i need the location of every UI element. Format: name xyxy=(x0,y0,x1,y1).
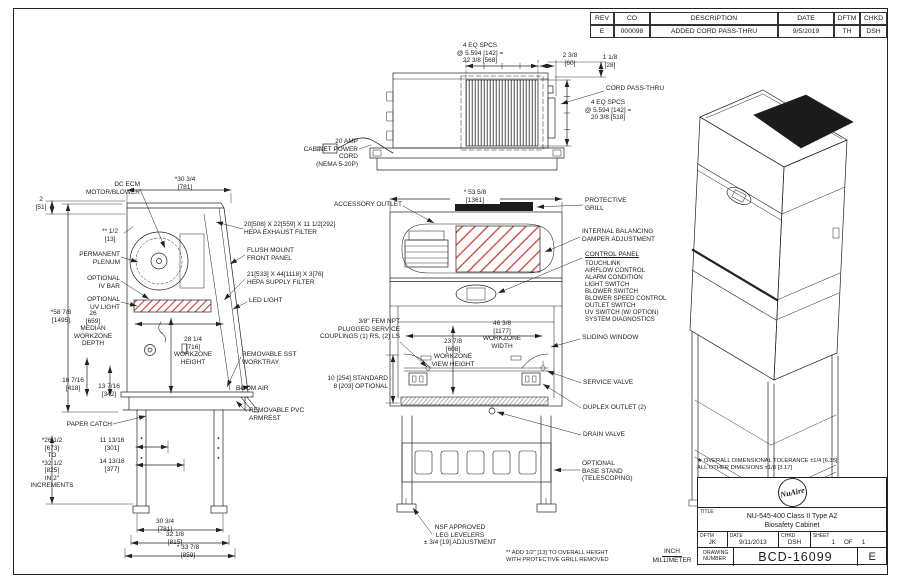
co-value: 000098 xyxy=(614,25,650,38)
sheet-number: 1 xyxy=(832,539,836,546)
dftm-cell-value: JK xyxy=(709,539,716,546)
drawing-number-label-cell: DRAWING NUMBER xyxy=(698,548,734,566)
chkd-cell: CHKD DSH xyxy=(779,532,811,547)
rev-header: REV xyxy=(590,12,614,25)
label-room-air: ROOM AIR xyxy=(236,385,280,393)
sheet-total: 1 xyxy=(862,539,866,546)
dim-workzone-view-height: 23 7/8 [608] WORKZONE VIEW HEIGHT xyxy=(428,338,478,368)
dim-eq-spcs-top: 4 EQ SPCS @ 5.594 [142] = 22 3/8 [568] xyxy=(448,42,512,65)
label-optional-iv-bar: OPTIONAL IV BAR xyxy=(72,275,120,290)
title-block: NuAire TITLE NU-545-400 Class II Type A2… xyxy=(697,477,887,565)
dim-53-58: * 53 5/8 [1361] xyxy=(450,189,500,204)
label-control-panel-items: TOUCHLINK AIRFLOW CONTROL ALARM CONDITIO… xyxy=(585,261,679,323)
dim-11-1316: 11 13/16 [301] xyxy=(92,437,132,452)
dim-worktray-height: 10 [254] STANDARD 8 [203] OPTIONAL xyxy=(308,375,388,390)
label-flush-mount-front-panel: FLUSH MOUNT FRONT PANEL xyxy=(247,247,317,262)
date-cell-value: 9/11/2013 xyxy=(739,539,767,546)
label-removable-sst-worktray: REMOVABLE SST WORKTRAY xyxy=(242,351,318,366)
drawing-number-label: DRAWING NUMBER xyxy=(702,551,728,563)
title-block-meta-row: DFTM JK DATE 9/11/2013 CHKD DSH SHEET 1 … xyxy=(698,532,886,548)
dftm-value: TH xyxy=(834,25,860,38)
label-control-panel-title: CONTROL PANEL xyxy=(585,251,651,259)
sheet-of-label: OF xyxy=(844,539,853,546)
dim-2-38: 2 3/8 [60] xyxy=(556,52,584,67)
label-service-valve: SERVICE VALVE xyxy=(583,379,643,387)
dim-30-34-top: *30 3/4 [781] xyxy=(160,176,210,191)
chkd-cell-label: CHKD xyxy=(781,533,795,539)
side-view-linework xyxy=(46,189,259,558)
drawing-title: NU-545-400 Class II Type A2 Biosafety Ca… xyxy=(698,508,886,531)
revision-letter: E xyxy=(858,548,886,566)
chkd-cell-value: DSH xyxy=(788,539,801,546)
co-header: CO xyxy=(614,12,650,25)
drawing-sheet: { "sheet": { "units_primary": "INCH", "u… xyxy=(0,0,900,582)
title-block-title-row: TITLE NU-545-400 Class II Type A2 Biosaf… xyxy=(698,508,886,532)
label-hepa-exhaust-filter: 20[508] X 22[559] X 11 1/2[292] HEPA EXH… xyxy=(244,221,368,236)
dim-eq-spcs-side: 4 EQ SPCS @ 5.594 [142] = 20 3/8 [518] xyxy=(574,99,642,122)
label-service-couplings: 3/8" FEM NPT PLUGGED SERVICE COUPLINGS (… xyxy=(288,318,400,341)
units-inch: INCH xyxy=(662,548,682,557)
tolerance-note: ★ OVERALL DIMENSIONAL TOLERANCE ±1/4 [6.… xyxy=(697,458,887,472)
revision-table: REV CO DESCRIPTION DATE DFTM CHKD E 0000… xyxy=(590,12,887,38)
label-sliding-window: SLIDING WINDOW xyxy=(582,334,650,342)
label-removable-pvc-armrest: REMOVABLE PVC ARMREST xyxy=(249,407,329,422)
chkd-value: DSH xyxy=(860,25,887,38)
drawing-number-value: BCD-16099 xyxy=(734,548,859,566)
overall-height-footnote: ** ADD 1/2" [13] TO OVERALL HEIGHT WITH … xyxy=(506,550,656,564)
label-cord-pass-thru: CORD PASS-THRU xyxy=(606,85,672,93)
nuaire-logo: NuAire xyxy=(775,475,809,509)
dftm-cell: DFTM JK xyxy=(698,532,728,547)
description-header: DESCRIPTION xyxy=(650,12,778,25)
dftm-cell-label: DFTM xyxy=(700,533,714,539)
sheet-cell: SHEET 1 OF 1 xyxy=(811,532,886,547)
date-value: 9/5/2019 xyxy=(778,25,834,38)
dim-13-716: 13 7/16 [342] xyxy=(92,383,126,398)
front-view-linework xyxy=(386,199,583,534)
dim-16-716: 16 7/16 [418] xyxy=(56,377,90,392)
title-block-logo-row: NuAire xyxy=(698,478,886,508)
rev-value: E xyxy=(590,25,614,38)
label-led-light: LED LIGHT xyxy=(249,297,299,305)
dftm-header: DFTM xyxy=(834,12,860,25)
dim-stand-range: *26 1/2 [673] TO *32 1/2 [825] IN 2" INC… xyxy=(28,437,76,490)
label-protective-grill: PROTECTIVE GRILL xyxy=(585,197,635,212)
label-hepa-supply-filter: 21[533] X 44[1118] X 3[76] HEPA SUPPLY F… xyxy=(247,271,359,286)
label-workzone-height: 28 1/4 [716] WORKZONE HEIGHT xyxy=(170,336,216,366)
chkd-header: CHKD xyxy=(860,12,887,25)
units-legend: INCH MILLIMETER xyxy=(645,548,699,565)
description-value: ADDED CORD PASS-THRU xyxy=(650,25,778,38)
label-optional-base-stand: OPTIONAL BASE STAND (TELESCOPING) xyxy=(582,460,648,483)
label-permanent-plenum: PERMANENT PLENUM xyxy=(62,251,120,266)
isometric-view-linework xyxy=(689,90,853,521)
dim-1-18: 1 1/8 [28] xyxy=(596,54,624,69)
title-block-number-row: DRAWING NUMBER BCD-16099 E xyxy=(698,548,886,566)
units-millimeter: MILLIMETER xyxy=(645,557,699,565)
date-cell-label: DATE xyxy=(730,533,743,539)
dim-33-78: * 33 7/8 [859] xyxy=(162,544,214,559)
label-cabinet-power-cord: 20 AMP CABINET POWER CORD (NEMA 5-20P) xyxy=(286,138,358,168)
dim-2-51: 2 [51] xyxy=(30,196,52,211)
date-header: DATE xyxy=(778,12,834,25)
label-drain-valve: DRAIN VALVE xyxy=(583,431,639,439)
label-median-workzone-depth: 26 [659] MEDIAN WORKZONE DEPTH xyxy=(67,310,119,348)
date-cell: DATE 9/11/2013 xyxy=(728,532,779,547)
label-nsf-leg-levelers: NSF APPROVED LEG LEVELERS ± 3/4 [19] ADJ… xyxy=(420,524,500,547)
label-accessory-outlet: ACCESSORY OUTLET xyxy=(330,201,402,209)
dim-14-1316: 14 13/16 [377] xyxy=(92,458,132,473)
title-label: TITLE xyxy=(700,509,714,515)
dim-half-13: ** 1/2 [13] xyxy=(96,228,124,243)
dim-workzone-width: 46 3/8 [1177] WORKZONE WIDTH xyxy=(478,320,526,350)
label-internal-balancing-damper: INTERNAL BALANCING DAMPER ADJUSTMENT xyxy=(582,228,670,243)
label-paper-catch: PAPER CATCH xyxy=(54,421,112,429)
top-view-linework xyxy=(316,60,606,170)
label-duplex-outlet: DUPLEX OUTLET (2) xyxy=(583,404,657,412)
label-dc-ecm-motor-blower: DC ECM MOTOR/BLOWER xyxy=(78,181,140,196)
sheet-cell-label: SHEET xyxy=(813,533,830,539)
